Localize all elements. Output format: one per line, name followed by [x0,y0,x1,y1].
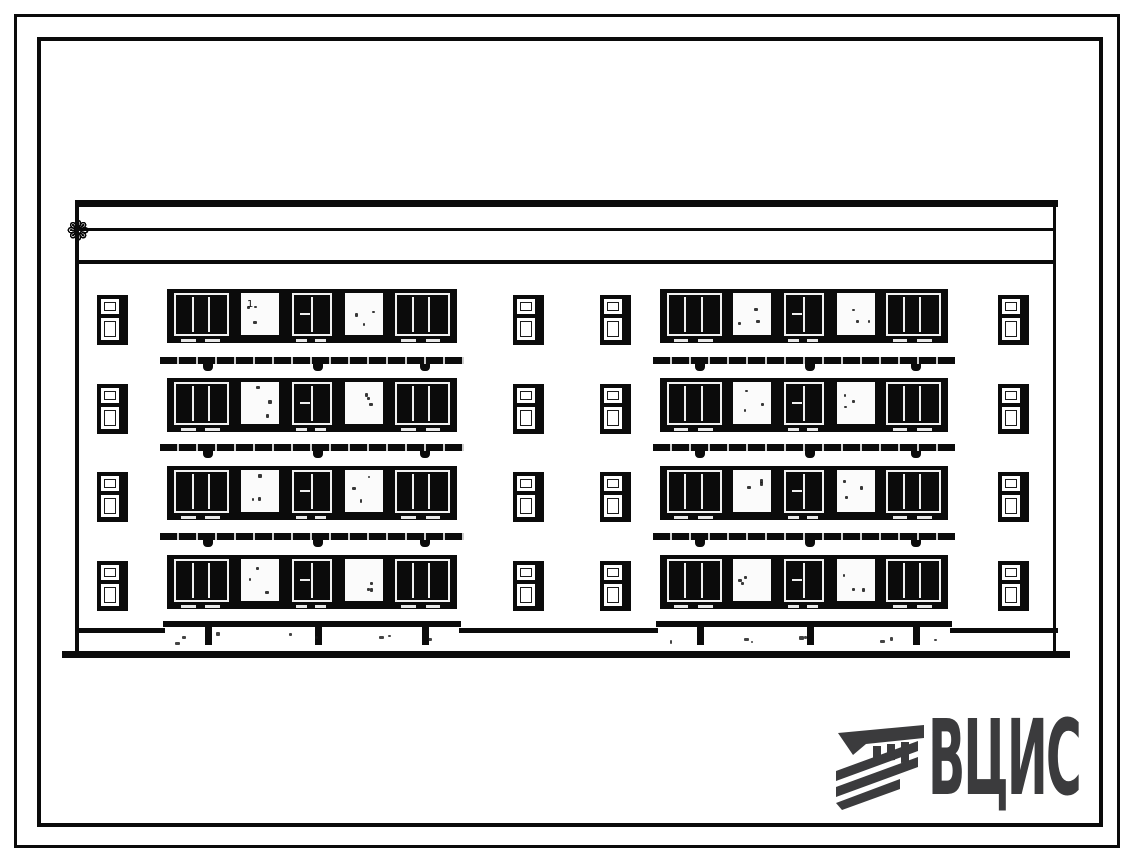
small-window-lower-pane [604,495,622,517]
blank-wall-panel [733,293,770,335]
scan-speckle [256,386,260,389]
window-sash-divider [919,297,921,332]
window-sill-dash [205,516,220,519]
small-window-vent-pane [604,388,622,403]
band-spacer [279,378,289,432]
window-frame [174,293,229,336]
scan-speckle [253,321,257,324]
blank-wall-panel [733,382,770,424]
window-sash-divider [192,297,194,332]
window-frame [784,293,824,336]
scan-speckle [799,636,804,640]
band-spacer [453,555,457,609]
scan-speckle [258,497,261,501]
window-sash-divider [208,474,210,509]
large-window [664,466,724,520]
large-window [664,289,724,343]
large-window [392,378,453,432]
window-sill-dash [917,339,932,342]
window-sill-dash [426,605,441,608]
small-window [998,561,1029,611]
window-frame [886,382,940,425]
balcony-rail-bar [160,533,464,540]
scan-speckle [751,641,753,643]
window-sill-dash [401,516,416,519]
large-window [781,466,827,520]
window-sash-divider [919,563,921,598]
scan-speckle [843,480,846,483]
balcony-rail-bracket [805,364,815,371]
small-window [600,384,631,434]
window-sill-dash [893,605,908,608]
scan-speckle [844,406,847,408]
small-window [600,561,631,611]
large-window [171,466,232,520]
window-frame [292,293,332,336]
facade-right-edge [1053,204,1056,653]
balcony-rail-bracket [911,540,921,547]
scan-speckle [760,482,763,486]
scan-speckle [182,636,186,639]
small-window [600,295,631,345]
window-sash-divider [412,563,414,598]
small-window-lower-pane [517,318,535,340]
window-balcony-band [660,378,948,432]
band-spacer [383,555,392,609]
window-sill-dash [296,605,307,608]
window-frame [395,382,450,425]
window-sash-divider [903,386,905,421]
small-window-lower-pane [517,495,535,517]
large-window [392,555,453,609]
balcony-rail-bar [653,533,955,540]
window-sill-dash [807,516,818,519]
large-window [781,555,827,609]
large-window [171,289,232,343]
window-sash-divider [311,386,313,421]
band-spacer [383,378,392,432]
scan-speckle [754,308,758,311]
window-sash-divider [192,563,194,598]
window-sill-dash [315,339,326,342]
window-frame [395,293,450,336]
small-window-vent-pane [517,565,535,580]
small-window [513,295,544,345]
small-window [513,384,544,434]
window-sill-dash [788,428,799,431]
small-window [998,472,1029,522]
balcony-rail-bracket [695,451,705,458]
window-sill-dash [807,605,818,608]
window-sash-divider [903,563,905,598]
small-window-vent-pane [101,476,119,491]
scan-speckle [289,633,292,636]
window-sill-dash [674,516,689,519]
window-sash-divider [412,386,414,421]
balcony-rail-bracket [313,364,323,371]
vcis-watermark-logo: ВЦИС [826,706,1088,810]
scan-speckle [745,390,748,392]
window-frame [292,382,332,425]
balcony-rail-bar [653,357,955,364]
blank-wall-panel [241,382,279,424]
band-spacer [279,466,289,520]
scan-speckle [744,409,746,412]
balcony-rail-bracket [420,540,430,547]
large-window [392,466,453,520]
band-spacer [383,289,392,343]
scan-speckle [880,640,885,643]
scan-speckle [844,394,846,397]
balcony-rail-bracket [203,364,213,371]
window-sill-dash [401,428,416,431]
small-window-lower-pane [101,318,119,340]
scan-speckle [804,636,807,639]
window-sash-divider [701,474,703,509]
large-window [883,555,943,609]
window-frame [667,559,721,602]
scan-speckle [216,632,220,636]
small-window-vent-pane [101,299,119,314]
window-transom-line [792,490,801,492]
facade-left-edge [75,204,79,653]
window-balcony-band [167,555,457,609]
window-sash-divider [919,386,921,421]
plinth-top-line [75,628,165,633]
band-spacer [232,289,241,343]
plinth-top-line [950,628,1058,633]
scanned-sheet: ❁❁❁❁❁❁❁❁❁❁❁❁❁❁ 1 ВЦИС [0,0,1134,863]
balcony-rail-bracket [911,451,921,458]
window-sill-dash [426,339,441,342]
scan-speckle [738,322,741,325]
blank-wall-panel [241,470,279,512]
window-sash-divider [428,386,430,421]
small-window-lower-pane [604,318,622,340]
window-sash-divider [208,386,210,421]
band-spacer [335,555,345,609]
balcony-rail-bracket [420,451,430,458]
scan-speckle [368,476,370,478]
window-sill-dash [807,428,818,431]
hatched-column-capital-icon [828,714,928,810]
small-window-vent-pane [1002,476,1020,491]
window-sill-dash [181,605,196,608]
window-sill-dash [917,428,932,431]
band-spacer [944,555,948,609]
small-window [97,472,128,522]
ground-line [62,651,1070,658]
large-window [392,289,453,343]
large-window [289,555,335,609]
band-spacer [725,555,734,609]
large-window [171,378,232,432]
scan-speckle [862,588,865,592]
large-window [289,378,335,432]
band-spacer [875,555,884,609]
scan-speckle [379,636,384,639]
window-sash-divider [903,474,905,509]
band-spacer [453,378,457,432]
window-frame [784,470,824,513]
window-sash-divider [311,297,313,332]
small-window-lower-pane [517,584,535,606]
scan-speckle [890,637,893,641]
band-spacer [725,289,734,343]
blank-wall-panel [345,470,383,512]
window-sash-divider [701,386,703,421]
small-window-lower-pane [101,584,119,606]
window-sash-divider [684,563,686,598]
band-spacer [944,378,948,432]
scan-speckle [741,582,744,585]
window-frame [174,382,229,425]
scan-speckle [363,323,365,326]
window-sash-divider [412,474,414,509]
small-window-lower-pane [604,584,622,606]
scan-speckle [852,309,855,311]
window-sill-dash [893,428,908,431]
band-spacer [827,378,837,432]
small-window-lower-pane [604,407,622,429]
balcony-rail-bracket [313,451,323,458]
window-sill-dash [788,516,799,519]
window-sash-divider [684,474,686,509]
window-sash-divider [428,474,430,509]
window-transom-line [792,579,801,581]
window-sill-dash [205,605,220,608]
window-frame [395,559,450,602]
band-spacer [335,378,345,432]
blank-wall-panel [733,559,770,601]
window-sash-divider [701,297,703,332]
window-sill-dash [788,605,799,608]
window-sill-dash [917,605,932,608]
small-window-vent-pane [1002,299,1020,314]
scan-speckle [252,498,254,501]
small-window-lower-pane [1002,407,1020,429]
scan-speckle [258,474,262,478]
window-sill-dash [807,339,818,342]
band-spacer [875,378,884,432]
balcony-rail-bracket [805,540,815,547]
band-spacer [232,555,241,609]
vcis-logo-text: ВЦИС [928,710,1080,806]
band-spacer [827,466,837,520]
window-sill-dash [296,428,307,431]
band-spacer [771,289,781,343]
blank-wall-panel [837,382,874,424]
scan-speckle [266,414,269,418]
window-frame [886,470,940,513]
window-sill-dash [181,516,196,519]
scan-speckle [355,313,358,317]
balcony-rail-bracket [695,540,705,547]
large-window [664,555,724,609]
band-spacer [383,466,392,520]
window-sill-dash [315,428,326,431]
balcony-rail-bracket [313,540,323,547]
balcony-rail-bracket [420,364,430,371]
window-sill-dash [698,428,713,431]
blank-wall-panel [241,559,279,601]
building-facade-elevation: ❁❁❁❁❁❁❁❁❁❁❁❁❁❁ 1 [75,200,1058,658]
scan-speckle [744,638,749,641]
window-sill-dash [315,605,326,608]
scan-speckle [388,635,391,637]
window-frame [395,470,450,513]
band-spacer [771,378,781,432]
blank-wall-panel [345,293,383,335]
scan-speckle [249,578,251,581]
window-sash-divider [208,563,210,598]
window-frame [174,559,229,602]
window-transom-line [792,313,801,315]
blank-wall-panel [345,382,383,424]
scan-speckle [369,403,373,406]
small-window [97,561,128,611]
balcony-rail-bar [653,444,955,451]
window-sash-divider [208,297,210,332]
window-frame [886,293,940,336]
window-frame [784,382,824,425]
small-window-lower-pane [517,407,535,429]
balcony-rail-bracket [805,451,815,458]
blank-wall-panel [837,470,874,512]
small-window-vent-pane [101,388,119,403]
small-window-lower-pane [1002,318,1020,340]
band-spacer [725,466,734,520]
small-window-vent-pane [517,388,535,403]
window-frame [784,559,824,602]
window-balcony-band [660,555,948,609]
window-transom-line [300,313,309,315]
window-sill-dash [205,428,220,431]
balcony-rail-bar [160,444,464,451]
band-spacer [944,466,948,520]
window-sill-dash [698,339,713,342]
band-spacer [335,466,345,520]
scan-speckle [370,588,373,592]
window-sill-dash [426,516,441,519]
scan-speckle [845,496,848,499]
large-window [781,289,827,343]
large-window [171,555,232,609]
scan-speckle [175,642,180,645]
band-spacer [279,289,289,343]
scan-speckle [843,574,845,577]
band-spacer [771,555,781,609]
balcony-rail-bracket [911,364,921,371]
small-window-lower-pane [1002,584,1020,606]
small-window-vent-pane [1002,388,1020,403]
small-window-vent-pane [1002,565,1020,580]
window-sill-dash [674,605,689,608]
small-window-vent-pane [604,476,622,491]
scan-speckle [367,397,370,400]
window-sill-dash [698,605,713,608]
plinth-post [205,621,212,645]
window-sash-divider [311,474,313,509]
window-sash-divider [311,563,313,598]
window-balcony-band [167,466,457,520]
window-sill-dash [296,516,307,519]
scan-speckle [670,640,672,644]
band-spacer [453,289,457,343]
window-frame [667,382,721,425]
small-window-vent-pane [604,299,622,314]
window-sill-dash [893,516,908,519]
window-sill-dash [698,516,713,519]
scan-speckle [761,403,764,406]
window-sill-dash [401,605,416,608]
large-window [883,378,943,432]
window-sill-dash [788,339,799,342]
window-balcony-band [167,378,457,432]
small-window-lower-pane [101,407,119,429]
window-sill-dash [674,428,689,431]
scan-speckle [360,499,362,503]
scan-speckle [370,582,373,585]
window-frame [667,293,721,336]
large-window [289,466,335,520]
band-spacer [771,466,781,520]
band-spacer [725,378,734,432]
window-frame [667,470,721,513]
window-transom-line [300,490,309,492]
window-sill-dash [917,516,932,519]
scan-speckle [868,320,870,323]
blank-wall-panel [733,470,770,512]
small-window-vent-pane [517,476,535,491]
small-window-vent-pane [517,299,535,314]
window-balcony-band [660,466,948,520]
window-frame [174,470,229,513]
balcony-rail-bar [160,357,464,364]
band-spacer [279,555,289,609]
large-window [883,466,943,520]
window-sill-dash [674,339,689,342]
blank-wall-panel [837,293,874,335]
window-sash-divider [803,386,805,421]
scan-speckle [428,638,432,641]
band-spacer [335,289,345,343]
window-transom-line [300,402,309,404]
band-spacer [944,289,948,343]
band-spacer [827,289,837,343]
scan-speckle [852,400,855,403]
scan-speckle [256,567,259,570]
plinth-post [697,621,704,645]
small-window [513,561,544,611]
small-window [97,295,128,345]
scan-speckle [254,306,257,308]
band-spacer [875,466,884,520]
scan-speckle [268,400,272,404]
window-sill-dash [401,339,416,342]
window-sash-divider [701,563,703,598]
small-window [600,472,631,522]
scan-speckle [372,311,375,313]
window-sash-divider [428,297,430,332]
band-spacer [875,289,884,343]
small-window [998,384,1029,434]
blank-wall-panel [345,559,383,601]
window-transom-line [792,402,801,404]
window-balcony-band [167,289,457,343]
balcony-rail-bracket [695,364,705,371]
small-window-vent-pane [101,565,119,580]
